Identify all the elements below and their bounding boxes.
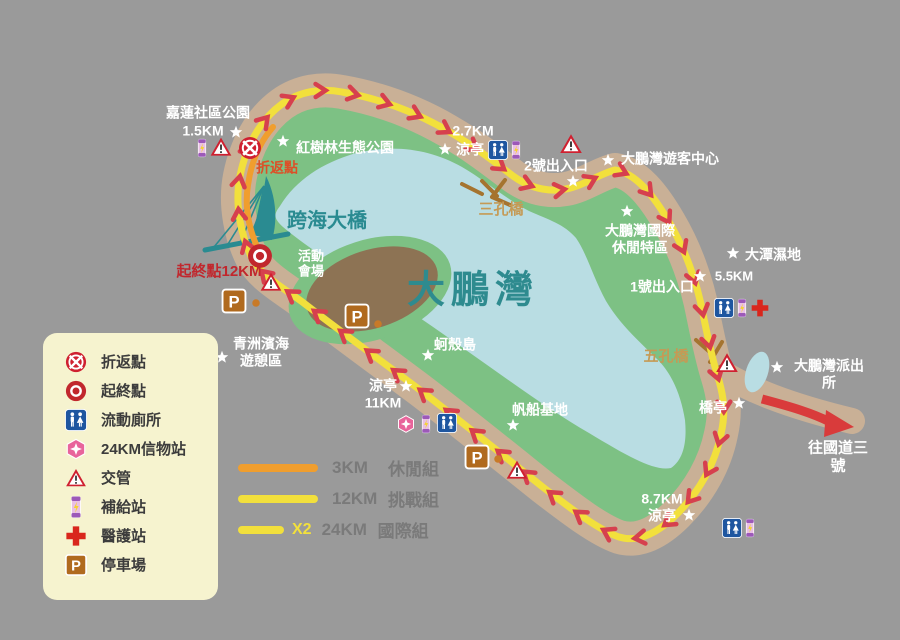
toilet-icon <box>63 407 89 433</box>
dapeng-bay-race-map: PPP 嘉蓮社區公園1.5KM紅樹林生態公園折返點跨海大橋起終點12KM活動 會… <box>0 0 900 640</box>
startend-icon <box>63 378 89 404</box>
route-dist: 3KM <box>332 458 388 478</box>
legend-item: 折返點 <box>43 347 218 376</box>
route-line-12km <box>238 495 318 503</box>
battery-icon <box>63 494 89 520</box>
noentry-icon <box>63 349 89 375</box>
route-legend-row: X2 24KM 國際組 <box>238 514 468 545</box>
legend-label: 起終點 <box>101 380 146 401</box>
route-group: 挑戰組 <box>388 486 439 511</box>
gem-icon <box>63 436 89 462</box>
legend-label: 流動廁所 <box>101 409 161 430</box>
legend-item: 流動廁所 <box>43 405 218 434</box>
parking-icon: P <box>63 552 89 578</box>
route-dist: 24KM <box>322 520 378 540</box>
legend-label: 交管 <box>101 467 131 488</box>
legend-item: 24KM信物站 <box>43 434 218 463</box>
route-line-3km <box>238 464 318 472</box>
route-multiplier: X2 <box>292 521 312 539</box>
svg-text:P: P <box>71 558 81 574</box>
legend-item: 起終點 <box>43 376 218 405</box>
route-group: 休閒組 <box>388 455 439 480</box>
route-legend-row: 3KM 休閒組 <box>238 452 468 483</box>
route-legend: 3KM 休閒組 12KM 挑戰組 X2 24KM 國際組 <box>238 452 468 545</box>
legend-label: 停車場 <box>101 554 146 575</box>
warning-icon <box>63 465 89 491</box>
legend-item: 交管 <box>43 463 218 492</box>
legend-item: 補給站 <box>43 492 218 521</box>
route-legend-row: 12KM 挑戰組 <box>238 483 468 514</box>
legend-label: 24KM信物站 <box>101 438 186 459</box>
legend-item: 醫護站 <box>43 521 218 550</box>
legend-item: P停車場 <box>43 550 218 579</box>
cross-icon <box>63 523 89 549</box>
legend-label: 醫護站 <box>101 525 146 546</box>
legend-label: 折返點 <box>101 351 146 372</box>
route-dist: 12KM <box>332 489 388 509</box>
legend-label: 補給站 <box>101 496 146 517</box>
symbols-legend: 折返點起終點流動廁所24KM信物站交管補給站醫護站P停車場 <box>43 333 218 600</box>
route-line-24km <box>238 526 284 534</box>
route-group: 國際組 <box>378 517 429 542</box>
